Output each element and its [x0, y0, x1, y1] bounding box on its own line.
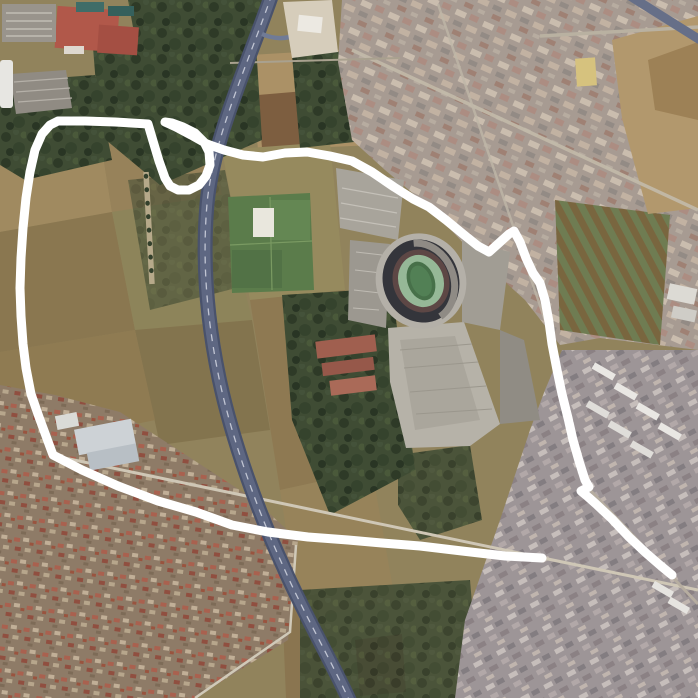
white-roof	[64, 46, 84, 54]
yellow-building	[575, 57, 597, 86]
satellite-map[interactable]	[0, 0, 698, 698]
red-roof-complex	[97, 25, 139, 56]
white-building	[297, 15, 323, 33]
teal-roof	[108, 6, 134, 16]
sports-field	[270, 200, 310, 240]
white-building	[0, 60, 13, 108]
satellite-map-canvas[interactable]	[0, 0, 698, 698]
teal-roof	[76, 2, 104, 12]
sports-field	[232, 250, 282, 288]
white-sports-field	[253, 208, 274, 237]
striped-fields-east	[555, 200, 670, 345]
